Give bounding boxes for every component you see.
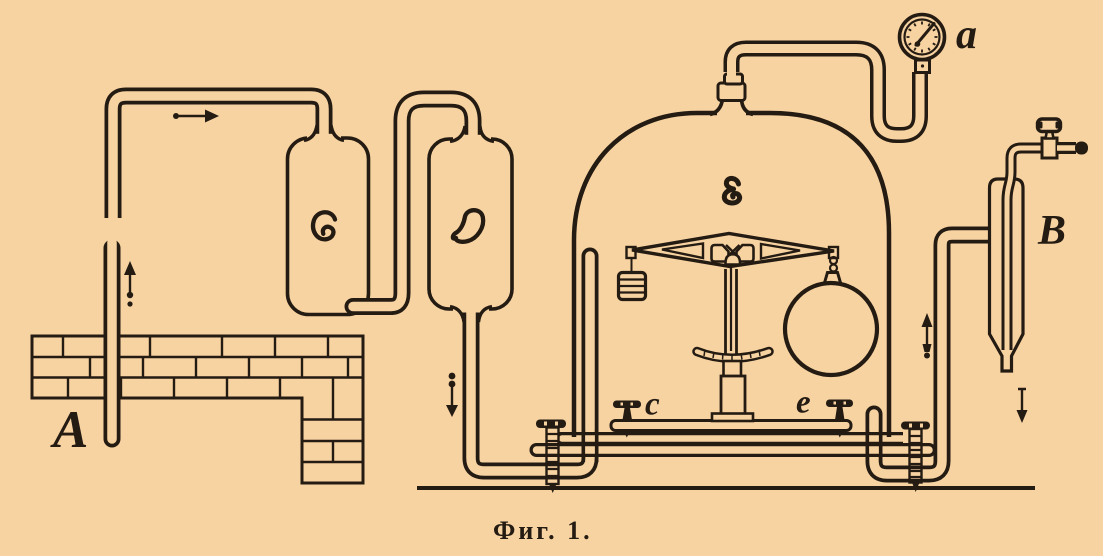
svg-text:e: e (796, 385, 811, 421)
svg-text:a: a (956, 12, 977, 58)
svg-text:B: B (1037, 208, 1066, 254)
svg-text:A: A (50, 401, 88, 459)
svg-text:Фиг. 1.: Фиг. 1. (493, 516, 593, 545)
svg-text:c: c (645, 387, 660, 423)
